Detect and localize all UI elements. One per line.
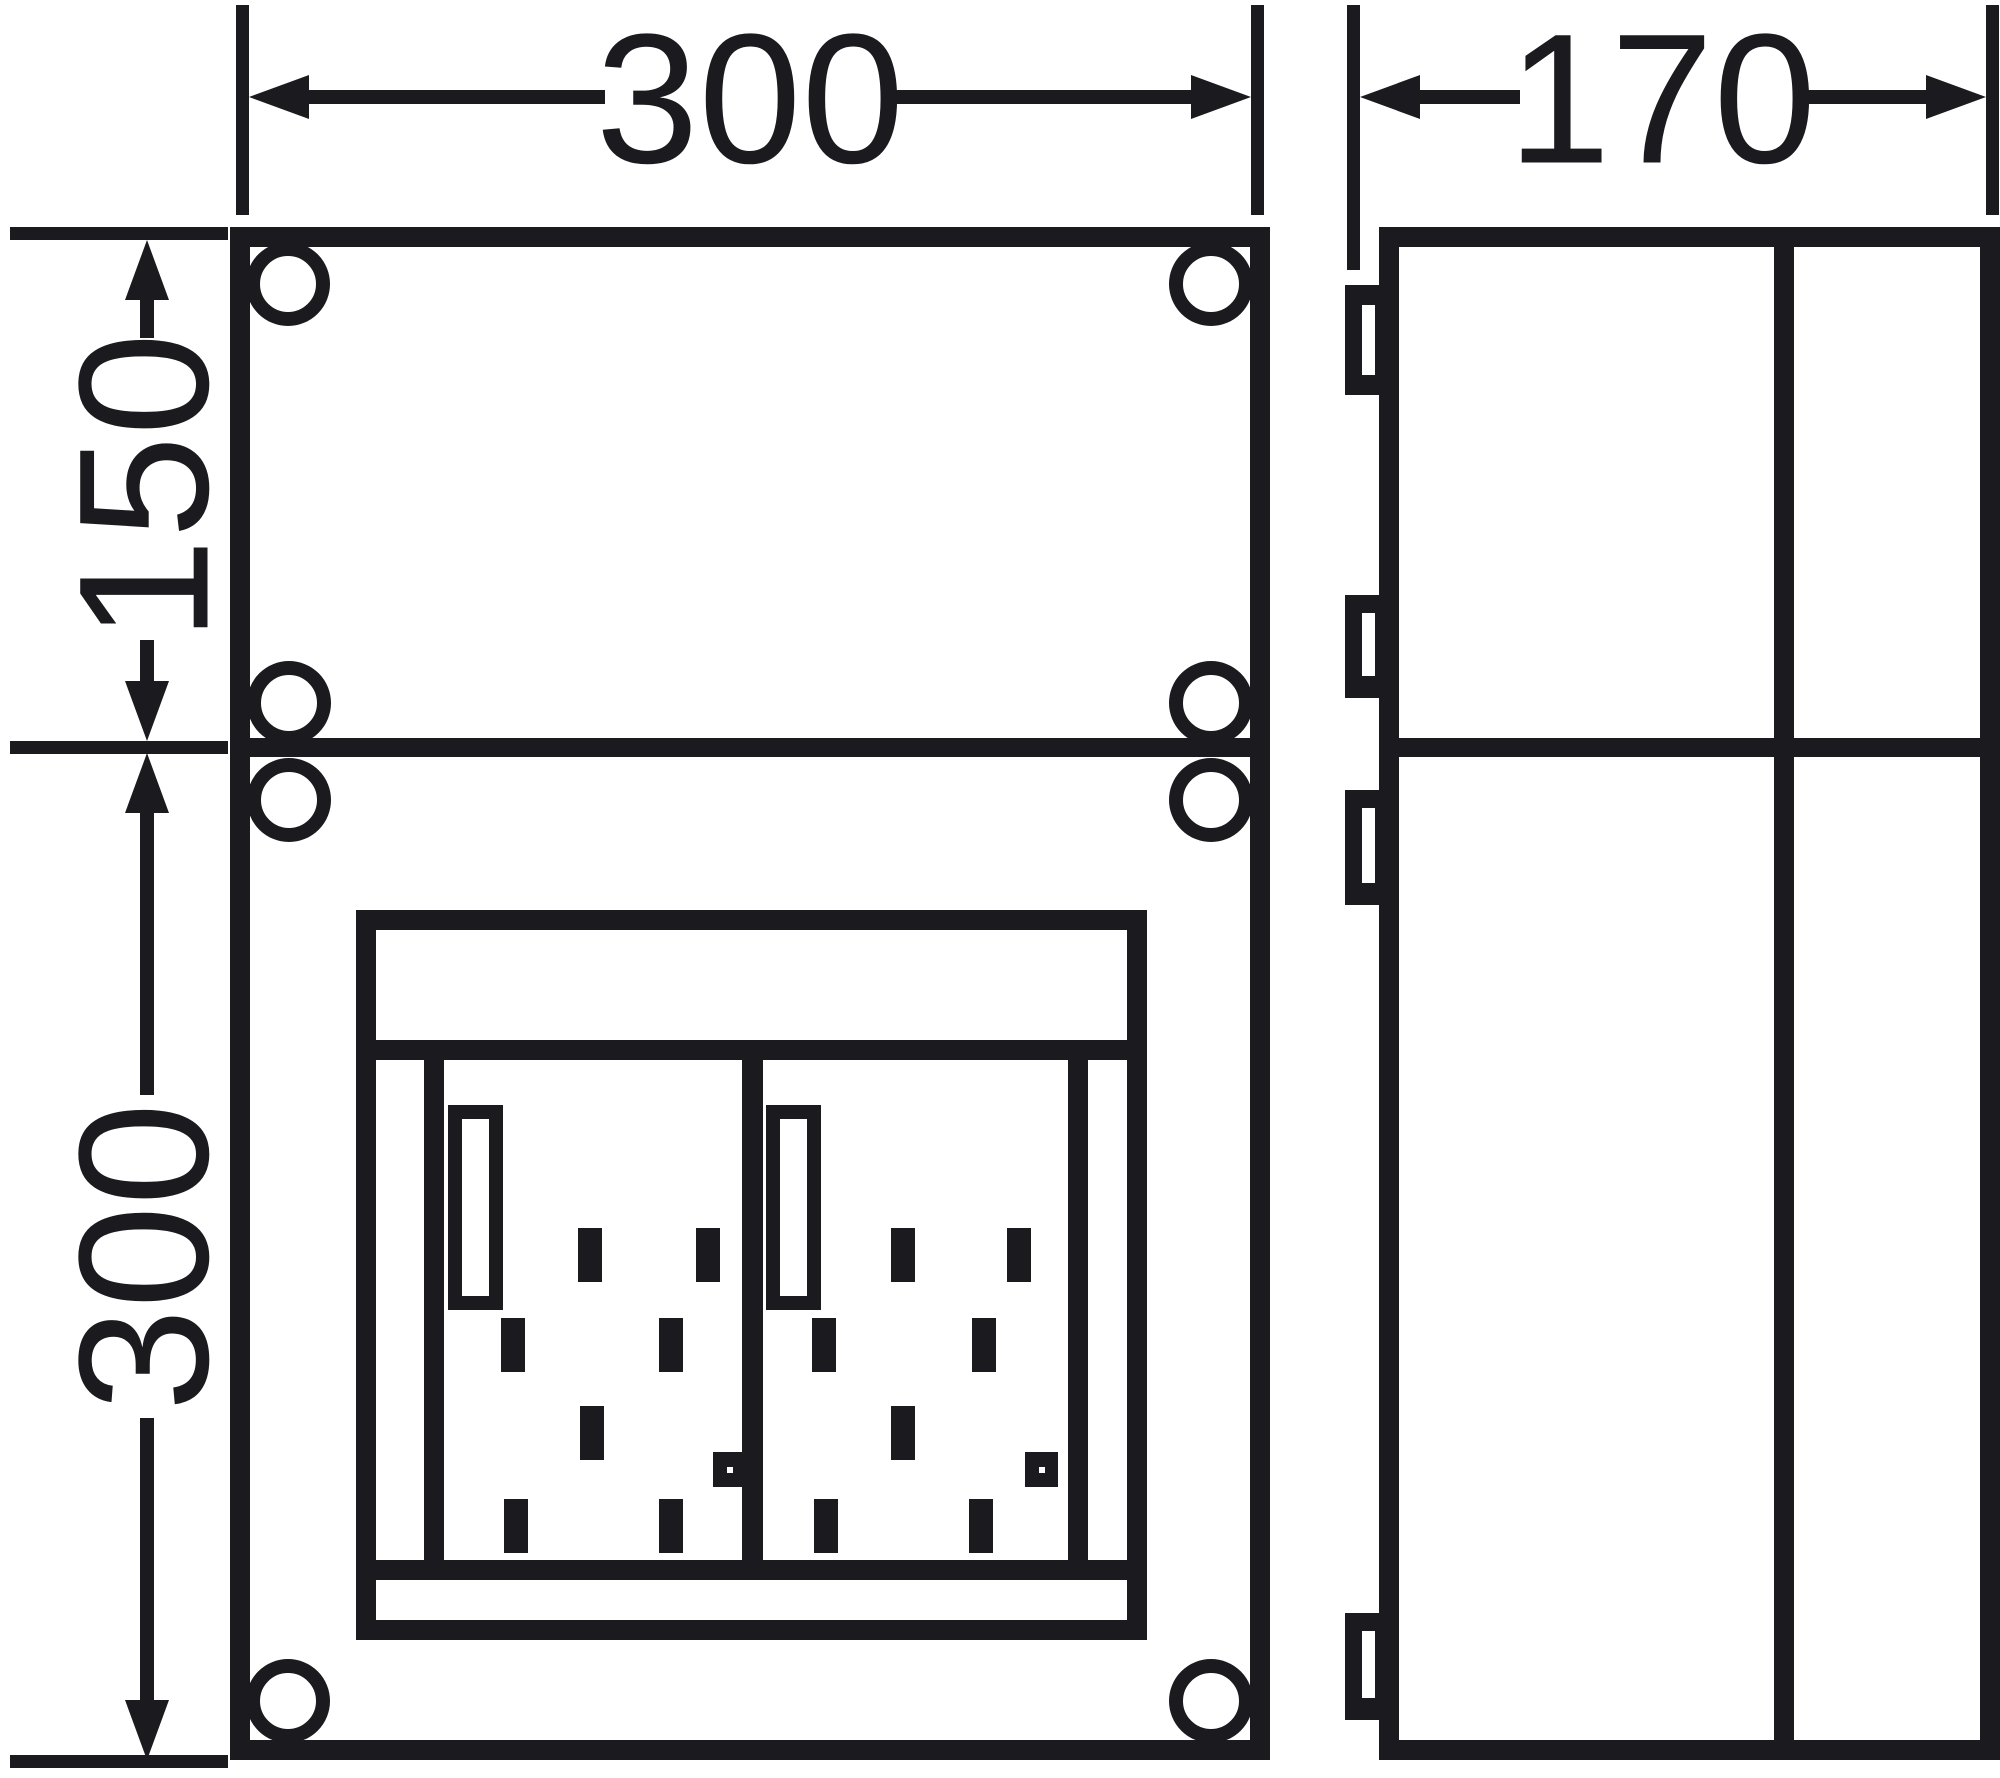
dim-label-front-width: 300 <box>596 8 905 193</box>
arrowhead-right-icon <box>1926 75 1986 119</box>
knockout-square <box>1025 1452 1058 1487</box>
screw-bottom-right <box>1169 1659 1253 1743</box>
screw-mid-right-upper <box>1169 661 1253 745</box>
terminal-mark <box>812 1318 836 1372</box>
mounting-clip <box>1345 595 1397 698</box>
dimension-line <box>1805 90 1927 104</box>
arrowhead-up-icon <box>125 240 169 300</box>
front-section-divider <box>240 738 1260 757</box>
screw-bottom-left <box>246 1659 330 1743</box>
side-view-outline <box>1379 227 2000 1760</box>
terminal-mark <box>1007 1228 1031 1282</box>
arrowhead-right-icon <box>1191 75 1251 119</box>
terminal-mark <box>504 1499 528 1553</box>
screw-mid-left-upper <box>247 661 331 745</box>
enclosure-dimension-drawing: 300 170 150 300 <box>0 0 2000 1778</box>
extension-line <box>1251 5 1264 215</box>
dim-label-depth: 170 <box>1508 8 1817 193</box>
dimension-line <box>885 90 1200 104</box>
mounting-clip-slot <box>1362 808 1375 883</box>
mounting-clip-slot <box>1362 305 1375 375</box>
terminal-mark <box>578 1228 602 1282</box>
terminal-mark <box>659 1318 683 1372</box>
mounting-clip-slot <box>1362 613 1375 676</box>
side-section-divider <box>1399 738 1980 757</box>
arrowhead-up-icon <box>125 753 169 813</box>
dim-label-lower-height: 300 <box>53 1103 238 1412</box>
mounting-clip <box>1345 1613 1397 1720</box>
dimension-line <box>300 90 605 104</box>
terminal-mark <box>580 1406 604 1460</box>
screw-mid-left-lower <box>247 758 331 842</box>
terminal-mark <box>659 1499 683 1553</box>
terminal-mark <box>972 1318 996 1372</box>
terminal-mark <box>891 1406 915 1460</box>
screw-top-right <box>1169 242 1253 326</box>
dim-label-upper-height: 150 <box>53 333 238 642</box>
mounting-clip <box>1345 790 1397 905</box>
arrowhead-down-icon <box>125 1700 169 1760</box>
screw-top-left <box>246 242 330 326</box>
dimension-line <box>140 808 154 1095</box>
extension-line <box>1986 5 1999 215</box>
side-lid-line <box>1774 247 1794 1740</box>
din-slot-right <box>766 1105 821 1310</box>
din-slot-left <box>448 1105 503 1310</box>
terminal-mark <box>969 1499 993 1553</box>
mounting-clip-slot <box>1362 1631 1375 1698</box>
extension-line <box>10 741 228 754</box>
extension-line <box>236 5 249 215</box>
screw-mid-right-lower <box>1169 758 1253 842</box>
knockout-square <box>713 1452 746 1487</box>
mounting-clip <box>1345 285 1397 395</box>
arrowhead-down-icon <box>125 681 169 741</box>
terminal-mark <box>696 1228 720 1282</box>
terminal-mark <box>501 1318 525 1372</box>
arrowhead-left-icon <box>1360 75 1420 119</box>
knockout-dot <box>1039 1467 1045 1473</box>
terminal-mark <box>891 1228 915 1282</box>
extension-line <box>10 1755 228 1768</box>
dimension-line <box>140 640 154 683</box>
dimension-line <box>1412 90 1520 104</box>
knockout-dot <box>727 1467 733 1473</box>
extension-line <box>10 227 228 240</box>
extension-line <box>1347 5 1360 270</box>
dimension-line <box>140 1418 154 1702</box>
terminal-mark <box>814 1499 838 1553</box>
